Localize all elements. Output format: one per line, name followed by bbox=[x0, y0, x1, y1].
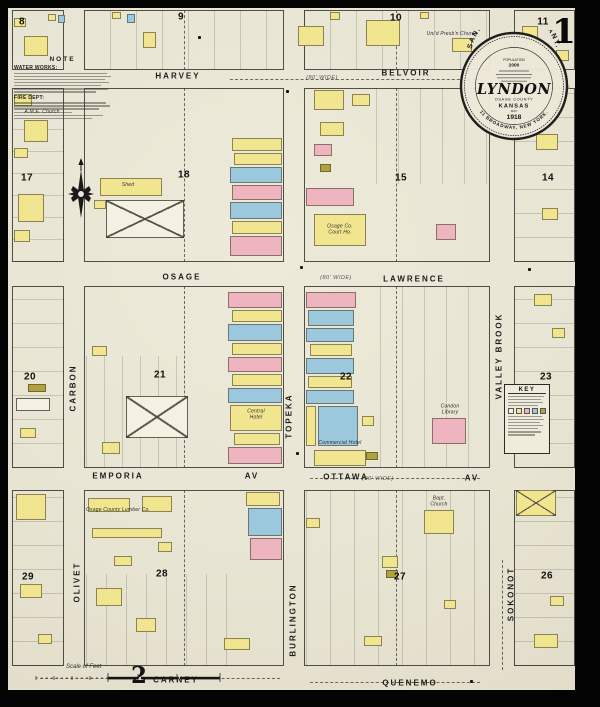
fine-print-line bbox=[14, 79, 105, 81]
seal-population-value: 2000 bbox=[509, 63, 520, 69]
key-color-chip bbox=[540, 408, 546, 414]
note-fine-print bbox=[14, 102, 111, 119]
note-fine-print bbox=[14, 73, 111, 93]
fine-print-line bbox=[14, 85, 101, 87]
sheet-number: 1 bbox=[552, 12, 576, 52]
key-color-chip bbox=[508, 408, 514, 414]
fine-print-line bbox=[14, 102, 106, 104]
key-fine-print bbox=[508, 416, 546, 436]
key-fine-print bbox=[508, 396, 546, 407]
fine-print-line bbox=[14, 73, 107, 75]
seal-month: MAY bbox=[511, 109, 517, 113]
fine-print-line bbox=[14, 82, 109, 84]
note-title: NOTE bbox=[14, 56, 111, 63]
fine-print-line bbox=[14, 88, 108, 90]
fine-print-line bbox=[14, 118, 92, 120]
scale-bar: Scale of Feet bbox=[28, 662, 328, 688]
key-title: KEY bbox=[508, 387, 546, 394]
fine-print-line bbox=[508, 402, 543, 404]
fine-print-line bbox=[14, 76, 111, 78]
note-fire-dept-label: FIRE DEPT: bbox=[14, 95, 111, 101]
key-color-chip bbox=[532, 408, 538, 414]
fine-print-line bbox=[508, 422, 540, 424]
note-box: NOTE WATER WORKS: FIRE DEPT: bbox=[14, 56, 111, 121]
fine-print-line bbox=[14, 108, 99, 110]
fine-print-line bbox=[508, 405, 538, 407]
key-color-chip bbox=[524, 408, 530, 414]
fine-print-line bbox=[508, 399, 541, 401]
seal-town-name: LYNDON bbox=[476, 81, 552, 98]
scale-bar-label: Scale of Feet bbox=[66, 664, 101, 670]
fine-print-line bbox=[508, 428, 538, 430]
key-color-swatches bbox=[508, 408, 546, 414]
fine-print-line bbox=[508, 425, 543, 427]
note-water-works-label: WATER WORKS: bbox=[14, 65, 111, 71]
seal-population-label: POPULATION bbox=[503, 58, 525, 62]
key-legend-box: KEY bbox=[504, 384, 550, 454]
fine-print-line bbox=[14, 112, 72, 114]
sanborn-map-sheet: 891011171815142021222329282726HARVEY(80'… bbox=[0, 0, 600, 707]
fine-print-line bbox=[508, 416, 542, 418]
fine-print-line bbox=[508, 431, 541, 433]
compass-rose-icon bbox=[66, 158, 96, 220]
seal-year: 1918 bbox=[507, 114, 522, 121]
seal-county: OSAGE COUNTY bbox=[495, 97, 534, 102]
adjacent-sheet-number: 2 bbox=[131, 662, 147, 689]
fine-print-line bbox=[508, 434, 535, 436]
fine-print-line bbox=[14, 115, 103, 117]
fine-print-line bbox=[508, 419, 544, 421]
fine-print-line bbox=[14, 91, 96, 93]
key-color-chip bbox=[516, 408, 522, 414]
fine-print-line bbox=[14, 105, 110, 107]
fine-print-line bbox=[508, 396, 544, 398]
